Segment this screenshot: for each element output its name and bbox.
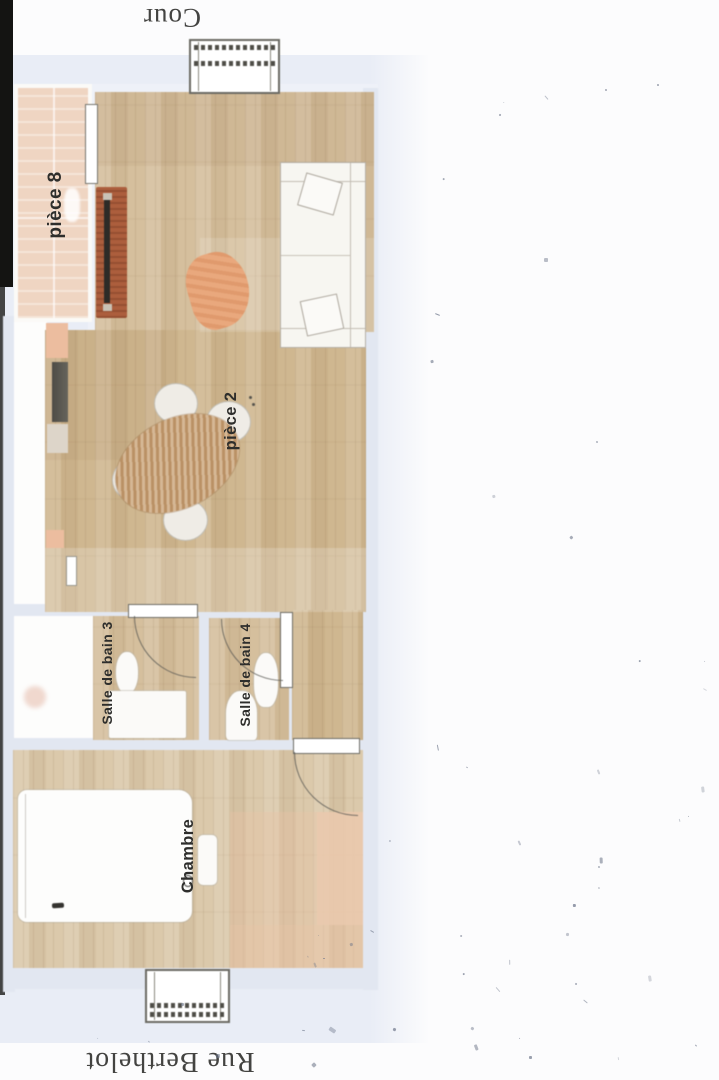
- kitchen-counter: [46, 530, 64, 548]
- cooktop: [52, 362, 68, 422]
- scan-dot: [249, 396, 252, 399]
- toilet: [116, 652, 138, 694]
- bedside-table: [198, 835, 217, 885]
- sofa-backrest: [350, 163, 365, 347]
- room-label-bath3: Salle de bain 3: [99, 624, 115, 722]
- scan-dot: [252, 403, 255, 406]
- kitchen-white-area: [14, 322, 47, 604]
- street-label-rue-berthelot: Rue Berthelot: [65, 1043, 275, 1079]
- tv: [104, 200, 110, 303]
- room-label-piece8: pièce 8: [46, 177, 66, 233]
- courtyard-window-radiator: [189, 39, 280, 94]
- tv-sideboard: [96, 187, 127, 318]
- kitchen-counter: [46, 323, 68, 358]
- room-label-bedroom: Chambre: [179, 824, 197, 888]
- tv-mount: [103, 304, 112, 311]
- balcony-window: [85, 104, 98, 184]
- street-label-courtyard: Cour: [122, 1, 222, 35]
- street-window-radiator: [145, 969, 230, 1023]
- scanned-floor-plan: pièce 8 pièce 2 Salle de bain 3 Salle de…: [0, 0, 719, 1080]
- sofa-pillow: [300, 293, 345, 336]
- radiator-fins: [150, 1003, 225, 1008]
- vanity: [109, 691, 186, 738]
- plan-graphics: [0, 0, 719, 1080]
- kitchen-tab: [66, 556, 77, 586]
- bathtub-area: [14, 616, 93, 738]
- sofa-seat-line: [281, 255, 351, 256]
- sofa: [280, 162, 366, 348]
- radiator-fins: [150, 1012, 225, 1017]
- radiator-fins: [194, 61, 275, 66]
- room-label-bath4: Salle de bain 4: [237, 626, 253, 724]
- bed: [18, 790, 192, 922]
- kitchen-unit: [47, 424, 68, 453]
- tv-mount: [103, 193, 112, 200]
- radiator-fins: [194, 45, 275, 50]
- room-label-piece2: pièce 2: [222, 394, 240, 448]
- hallway-floor: [292, 610, 363, 740]
